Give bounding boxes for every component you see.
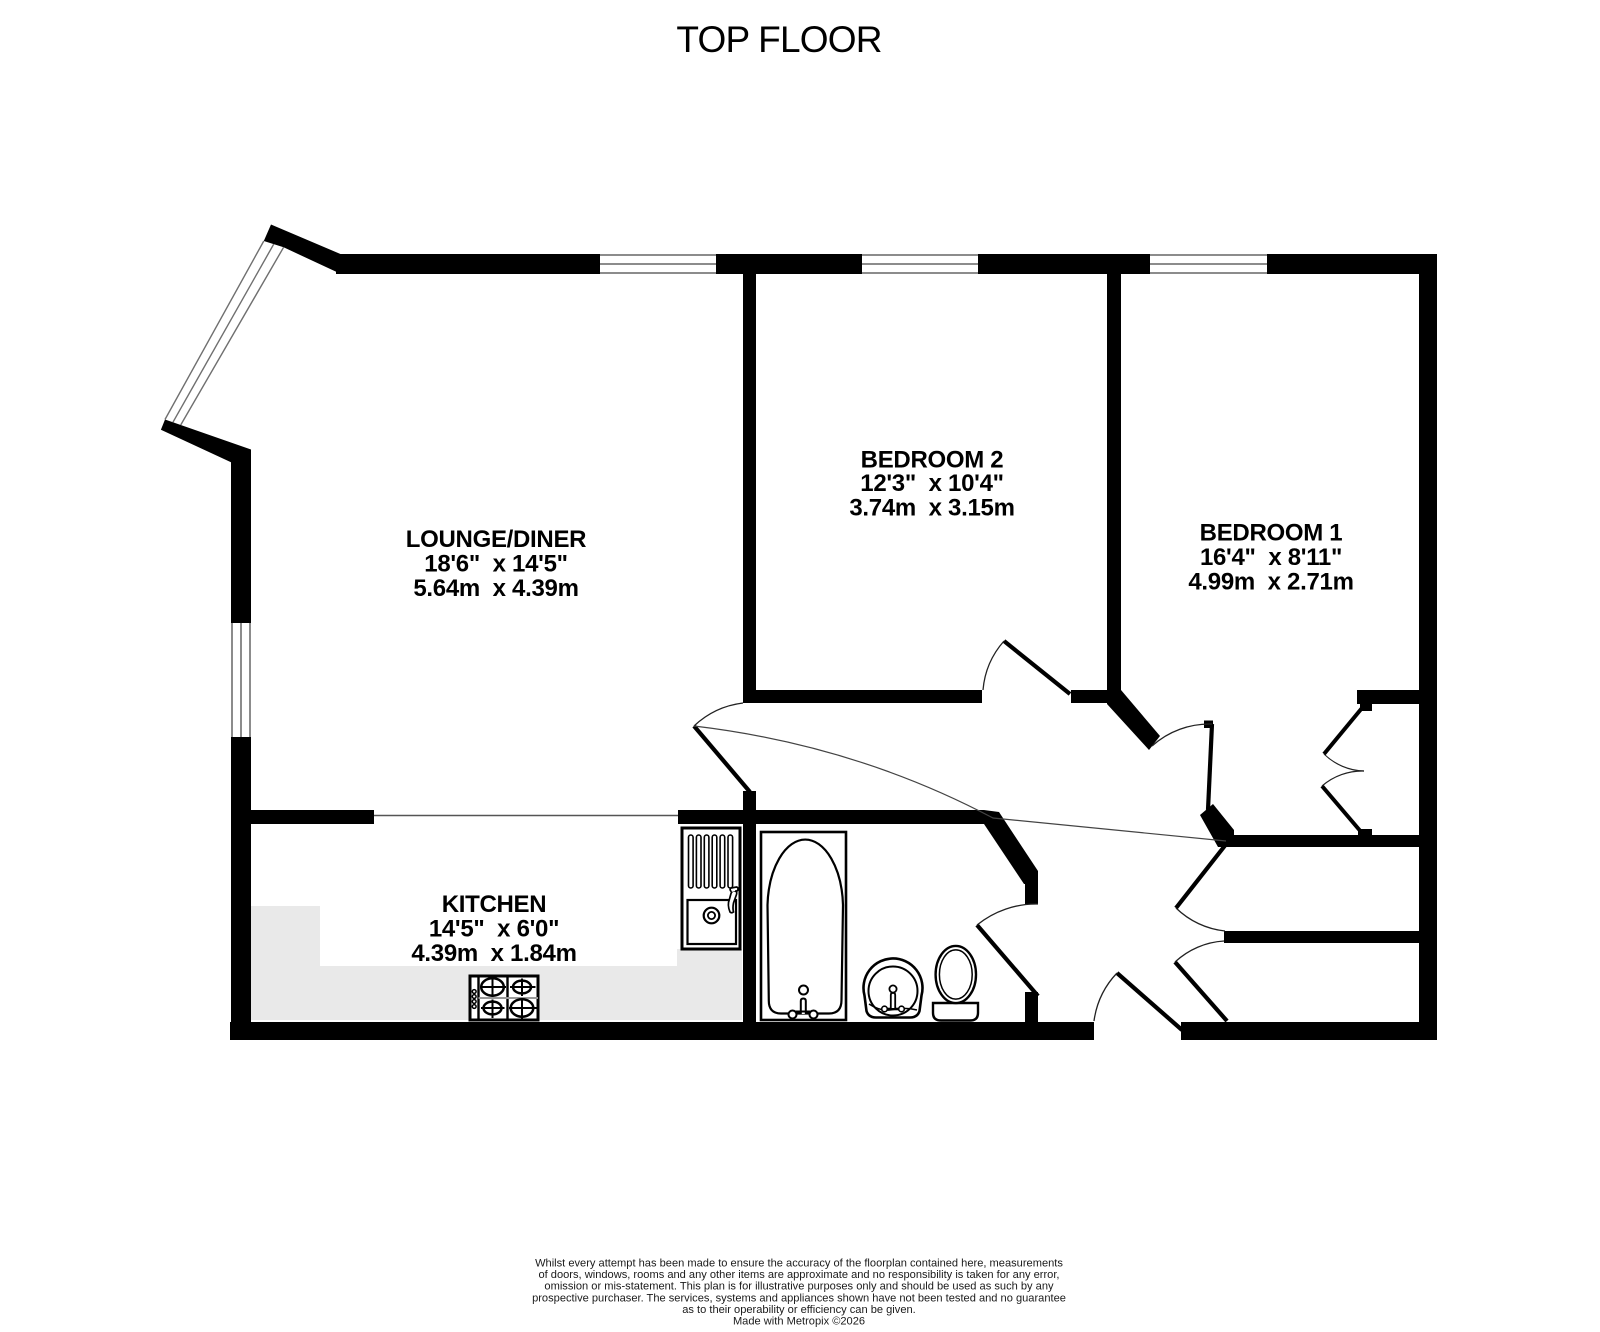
svg-text:as to their operability or eff: as to their operability or efficiency ca… — [682, 1304, 916, 1316]
svg-text:4.39m x 1.84m: 4.39m x 1.84m — [411, 940, 576, 967]
svg-text:LOUNGE/DINER: LOUNGE/DINER — [406, 526, 586, 553]
svg-text:TOP FLOOR: TOP FLOOR — [676, 19, 881, 60]
svg-text:16'4" x 8'11": 16'4" x 8'11" — [1200, 544, 1342, 571]
svg-text:prospective purchaser. The ser: prospective purchaser. The services, sys… — [532, 1292, 1066, 1304]
svg-text:BEDROOM 1: BEDROOM 1 — [1200, 520, 1343, 547]
svg-text:18'6" x 14'5": 18'6" x 14'5" — [424, 551, 567, 578]
svg-text:of doors, windows, rooms and a: of doors, windows, rooms and any other i… — [538, 1269, 1059, 1281]
svg-text:3.74m x 3.15m: 3.74m x 3.15m — [849, 495, 1014, 522]
svg-text:omission or mis-statement. Thi: omission or mis-statement. This plan is … — [544, 1281, 1054, 1293]
svg-text:Whilst every attempt has been: Whilst every attempt has been made to en… — [535, 1258, 1063, 1270]
svg-text:5.64m x 4.39m: 5.64m x 4.39m — [413, 575, 578, 602]
svg-text:12'3" x 10'4": 12'3" x 10'4" — [860, 470, 1003, 497]
svg-text:KITCHEN: KITCHEN — [442, 891, 547, 918]
svg-text:14'5" x 6'0": 14'5" x 6'0" — [429, 916, 559, 943]
svg-text:4.99m x 2.71m: 4.99m x 2.71m — [1188, 569, 1353, 596]
svg-text:Made with Metropix ©2026: Made with Metropix ©2026 — [733, 1316, 865, 1328]
